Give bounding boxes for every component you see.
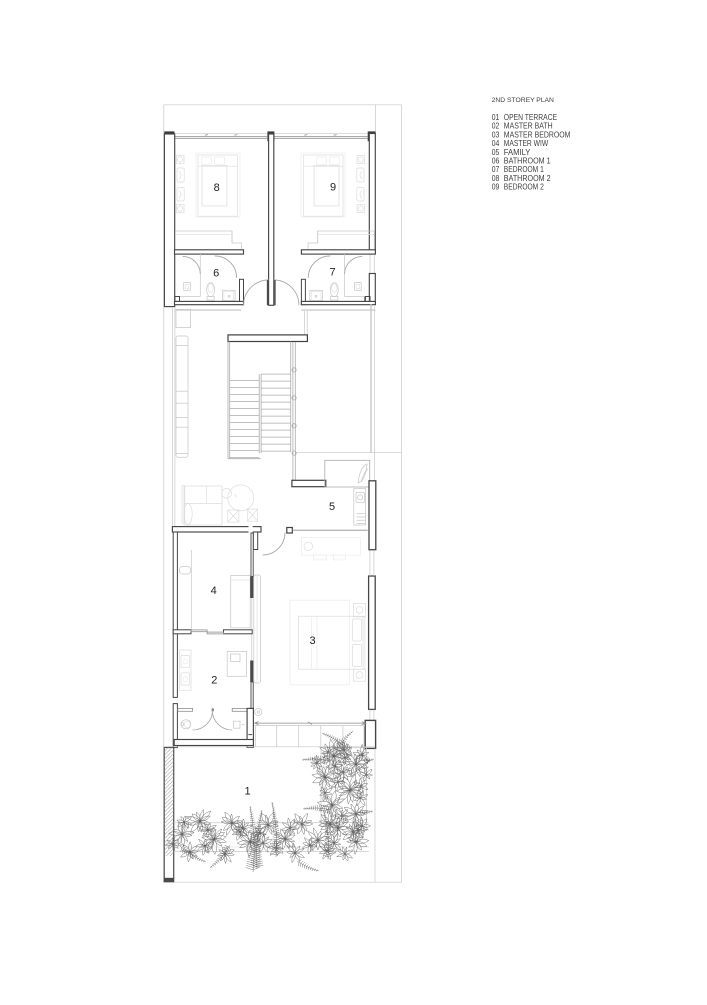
svg-text:BATHROOM 2: BATHROOM 2 <box>504 174 551 183</box>
svg-text:03: 03 <box>492 130 500 139</box>
svg-text:BATHROOM 1: BATHROOM 1 <box>504 157 551 166</box>
svg-text:4: 4 <box>211 585 217 597</box>
svg-text:BEDROOM 1: BEDROOM 1 <box>504 165 544 174</box>
svg-text:02: 02 <box>492 122 500 131</box>
svg-text:04: 04 <box>492 139 500 148</box>
svg-text:5: 5 <box>329 501 335 513</box>
svg-text:MASTER BATH: MASTER BATH <box>504 122 553 131</box>
svg-text:MASTER WIW: MASTER WIW <box>504 139 549 148</box>
svg-text:2: 2 <box>211 674 217 686</box>
svg-text:1: 1 <box>244 786 250 798</box>
svg-text:2ND STOREY PLAN: 2ND STOREY PLAN <box>492 97 555 104</box>
svg-text:MASTER BEDROOM: MASTER BEDROOM <box>504 130 571 139</box>
svg-text:OPEN TERRACE: OPEN TERRACE <box>504 113 558 122</box>
svg-text:06: 06 <box>492 157 500 166</box>
svg-text:01: 01 <box>492 113 500 122</box>
svg-text:09: 09 <box>492 183 500 192</box>
svg-text:BEDROOM 2: BEDROOM 2 <box>504 183 544 192</box>
svg-text:6: 6 <box>213 267 219 279</box>
svg-text:7: 7 <box>329 267 335 279</box>
svg-text:07: 07 <box>492 165 500 174</box>
svg-text:FAMILY: FAMILY <box>504 148 531 157</box>
svg-text:3: 3 <box>309 635 315 647</box>
svg-text:05: 05 <box>492 148 500 157</box>
svg-text:8: 8 <box>214 182 220 194</box>
svg-text:08: 08 <box>492 174 500 183</box>
svg-text:9: 9 <box>330 182 336 194</box>
